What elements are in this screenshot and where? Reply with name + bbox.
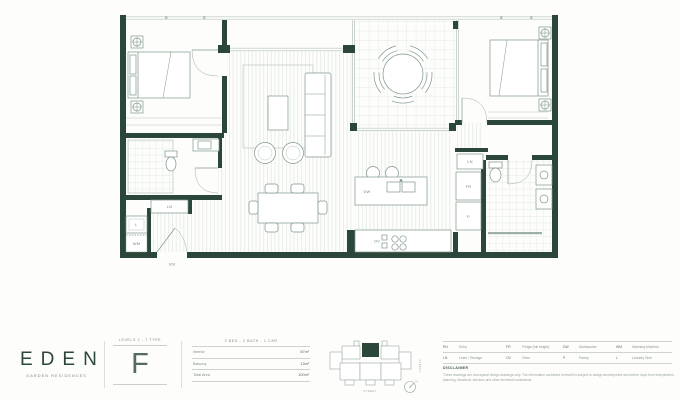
wardrobe-1 — [126, 118, 222, 125]
legend-item: LN Linen / Storage — [443, 356, 506, 360]
legend-abbr: EN — [443, 345, 459, 349]
pantry-label: P — [467, 214, 470, 219]
legend-row: LN Linen / Storage OV Oven P Pantry L La… — [443, 352, 672, 364]
table-row: Interior 87m² — [192, 346, 310, 358]
legend-label: Fridge (full height) — [522, 345, 549, 349]
door-swing — [192, 50, 218, 76]
brand-name: EDEN — [20, 349, 100, 371]
highlighted-unit — [362, 343, 379, 357]
table-row: Balcony 13m² — [192, 358, 310, 370]
floor-plan: EN LN L WM DW OV LN FR P — [115, 12, 560, 272]
street-label-right: STREET — [418, 359, 422, 372]
armchair — [255, 143, 276, 164]
legend: EN Entry FR Fridge (full height) DW Dish… — [443, 341, 672, 364]
floor-plan-drawing: EN LN L WM DW OV LN FR P — [115, 12, 560, 272]
disclaimer-title: DISCLAIMER — [443, 366, 674, 370]
toilet-tank — [489, 162, 502, 168]
divider — [181, 341, 182, 388]
balcony-table — [383, 54, 423, 94]
area-value: 100m² — [298, 373, 309, 377]
area-value: 13m² — [300, 362, 309, 366]
legend-label: Washing Machine — [632, 345, 659, 349]
ceiling-symbol — [539, 27, 551, 39]
north-label: N — [416, 380, 418, 384]
vanity-basin — [536, 165, 552, 185]
ceiling-symbol — [131, 101, 143, 113]
fridge-label: FR — [466, 184, 472, 189]
legend-item: OV Oven — [506, 356, 563, 360]
area-value: 87m² — [300, 350, 309, 354]
coffee-table — [268, 96, 288, 130]
legend-item: EN Entry — [443, 345, 506, 349]
legend-label: Entry — [459, 345, 467, 349]
dining-chair — [318, 201, 327, 214]
door-swing — [195, 168, 218, 193]
dining-chair — [249, 201, 258, 214]
disclaimer: DISCLAIMER These drawings are conceptual… — [443, 366, 674, 383]
area-label: Balcony — [193, 362, 207, 366]
vanity-basin — [536, 189, 552, 209]
oven-label: OV — [374, 239, 380, 244]
legend-abbr: FR — [506, 345, 522, 349]
table-row: Total Area 100m² — [192, 369, 310, 381]
unit-type-letter: F — [113, 346, 167, 382]
legend-abbr: P — [563, 356, 579, 360]
wardrobe-2 — [488, 112, 548, 118]
divider — [104, 341, 105, 388]
floorplan-page: EN LN L WM DW OV LN FR P EDEN GARDEN RES… — [0, 0, 680, 400]
area-table: Interior 87m² Balcony 13m² Total Area 10… — [192, 346, 310, 382]
brand-logo: EDEN GARDEN RESIDENCES — [20, 349, 92, 378]
legend-item: L Laundry Sink — [616, 356, 672, 360]
legend-label: Pantry — [579, 356, 589, 360]
legend-abbr: OV — [506, 356, 522, 360]
legend-abbr: L — [616, 356, 632, 360]
legend-abbr: DW — [563, 345, 579, 349]
dining-table — [258, 193, 318, 223]
legend-row: EN Entry FR Fridge (full height) DW Dish… — [443, 341, 672, 352]
legend-label: Dishwasher — [579, 345, 597, 349]
washing-machine-label: WM — [133, 241, 141, 246]
rule — [113, 384, 167, 385]
legend-abbr: WM — [616, 345, 632, 349]
dining-chair — [265, 223, 278, 232]
dining-chair — [291, 223, 304, 232]
area-label: Interior — [193, 350, 205, 354]
unit-type-block: LEVELS 2 - 7 TYPE F — [113, 338, 167, 385]
dishwasher-label: DW — [363, 189, 370, 194]
door-swing — [462, 98, 487, 123]
counter — [355, 230, 451, 252]
ceiling-symbol — [131, 36, 143, 48]
tap — [400, 180, 402, 182]
legend-label: Linen / Storage — [459, 356, 482, 360]
entry-label: EN — [169, 262, 175, 267]
ceiling-symbol — [539, 99, 551, 111]
legend-item: DW Dishwasher — [563, 345, 616, 349]
shower-ledge — [488, 232, 542, 234]
toilet-tank — [165, 151, 177, 157]
bedroom-2 — [462, 27, 551, 123]
toilet-bowl — [490, 168, 501, 182]
legend-label: Oven — [522, 356, 530, 360]
legend-item: FR Fridge (full height) — [506, 345, 563, 349]
area-label: Total Area — [193, 373, 210, 377]
armchair — [283, 143, 304, 164]
bed-2 — [490, 40, 548, 96]
unit-config: 2 BED - 2 BATH - 1 CAR — [192, 339, 310, 346]
dining-chair — [265, 184, 278, 193]
legend-abbr: LN — [443, 356, 459, 360]
area-stats: 2 BED - 2 BATH - 1 CAR Interior 87m² Bal… — [192, 339, 310, 382]
north-compass-icon: N — [405, 380, 418, 393]
toilet-bowl — [166, 157, 176, 171]
linen-right-label: LN — [467, 159, 473, 164]
bed-1 — [128, 52, 190, 98]
building-key-plan: STREET STREET N — [318, 330, 428, 400]
legend-label: Laundry Sink — [632, 356, 652, 360]
linen-label: LN — [167, 204, 173, 209]
brand-tagline: GARDEN RESIDENCES — [20, 374, 93, 378]
disclaimer-body: These drawings are conceptual design dra… — [443, 373, 674, 383]
bedroom-1 — [126, 36, 222, 125]
street-label-bottom: STREET — [363, 389, 376, 393]
levels-label: LEVELS 2 - 7 TYPE — [113, 338, 167, 342]
legend-item: P Pantry — [563, 356, 616, 360]
dining-chair — [291, 184, 304, 193]
legend-item: WM Washing Machine — [616, 345, 672, 349]
